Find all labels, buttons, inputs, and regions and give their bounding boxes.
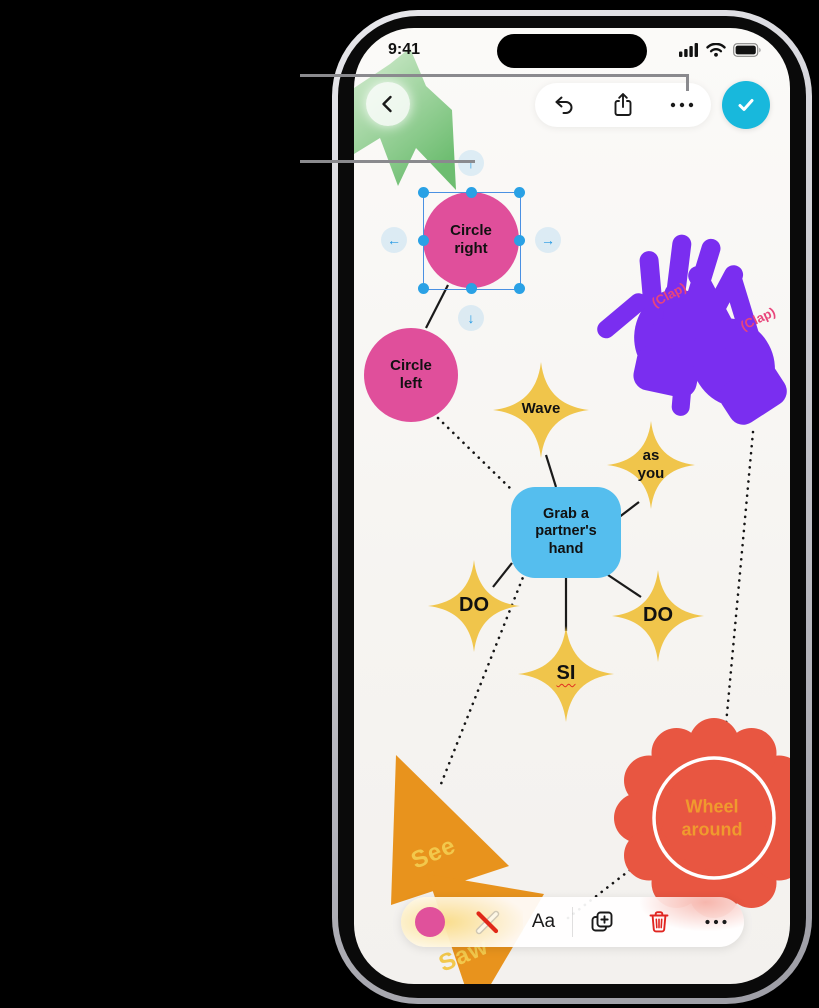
edit-toolbar — [535, 83, 711, 127]
selection-handle-right[interactable] — [514, 235, 525, 246]
undo-icon — [552, 93, 576, 117]
selection-handle-top-left[interactable] — [418, 187, 429, 198]
freeform-canvas-screen: 9:41 — [354, 28, 790, 984]
selection-handle-top[interactable] — [466, 187, 477, 198]
selection-handle-bottom-left[interactable] — [418, 283, 429, 294]
text-style-label: Aa — [532, 911, 555, 933]
undo-button[interactable] — [544, 85, 584, 125]
move-right-arrow-button[interactable]: → — [535, 227, 561, 253]
selection-bounding-box — [423, 192, 521, 290]
selection-handle-left[interactable] — [418, 235, 429, 246]
duplicate-icon — [589, 909, 615, 935]
circle-left-label: Circle left — [390, 357, 432, 393]
wave-label: Wave — [522, 400, 561, 418]
selection-handle-bottom[interactable] — [466, 283, 477, 294]
toolbar-more-button[interactable] — [687, 918, 744, 926]
green-star-shape[interactable] — [354, 48, 456, 190]
trash-icon — [646, 909, 672, 935]
pink-fill-swatch — [415, 907, 445, 937]
selection-handle-top-right[interactable] — [514, 187, 525, 198]
callout-line-move-arrow — [300, 160, 475, 163]
shape-format-toolbar: Aa — [401, 897, 744, 947]
chevron-back-icon — [377, 93, 399, 115]
share-button[interactable] — [603, 85, 643, 125]
fill-color-button[interactable] — [401, 907, 458, 937]
move-left-arrow-button[interactable]: ← — [381, 227, 407, 253]
as-you-label: as you — [638, 447, 665, 483]
grab-partner-label: Grab a partner's hand — [535, 506, 596, 558]
move-down-arrow-button[interactable]: ↓ — [458, 305, 484, 331]
checkmark-icon — [733, 92, 759, 118]
back-button[interactable] — [366, 82, 410, 126]
line-style-button[interactable] — [458, 908, 515, 936]
delete-button[interactable] — [630, 909, 687, 935]
wheel-around-label: Wheel around — [682, 796, 743, 843]
share-icon — [611, 92, 635, 118]
move-up-arrow-button[interactable]: ↑ — [458, 150, 484, 176]
hands-shape[interactable] — [583, 218, 790, 457]
duplicate-button[interactable] — [573, 909, 630, 935]
line-style-icon — [473, 908, 501, 936]
do-right-label: DO — [643, 603, 673, 627]
callout-line-more-button — [300, 74, 689, 77]
do-left-label: DO — [459, 593, 489, 617]
done-button[interactable] — [722, 81, 770, 129]
si-label: SI — [557, 661, 576, 685]
signal-strength-icon — [679, 43, 699, 57]
ellipsis-icon — [669, 101, 695, 109]
wifi-icon — [706, 43, 726, 57]
status-time: 9:41 — [388, 41, 420, 59]
ellipsis-icon — [704, 918, 728, 926]
more-button[interactable] — [662, 85, 702, 125]
selection-handle-bottom-right[interactable] — [514, 283, 525, 294]
callout-line-more-button-vertical — [686, 74, 689, 91]
battery-icon — [733, 43, 762, 57]
text-style-button[interactable]: Aa — [515, 911, 572, 933]
dynamic-island — [497, 34, 647, 68]
